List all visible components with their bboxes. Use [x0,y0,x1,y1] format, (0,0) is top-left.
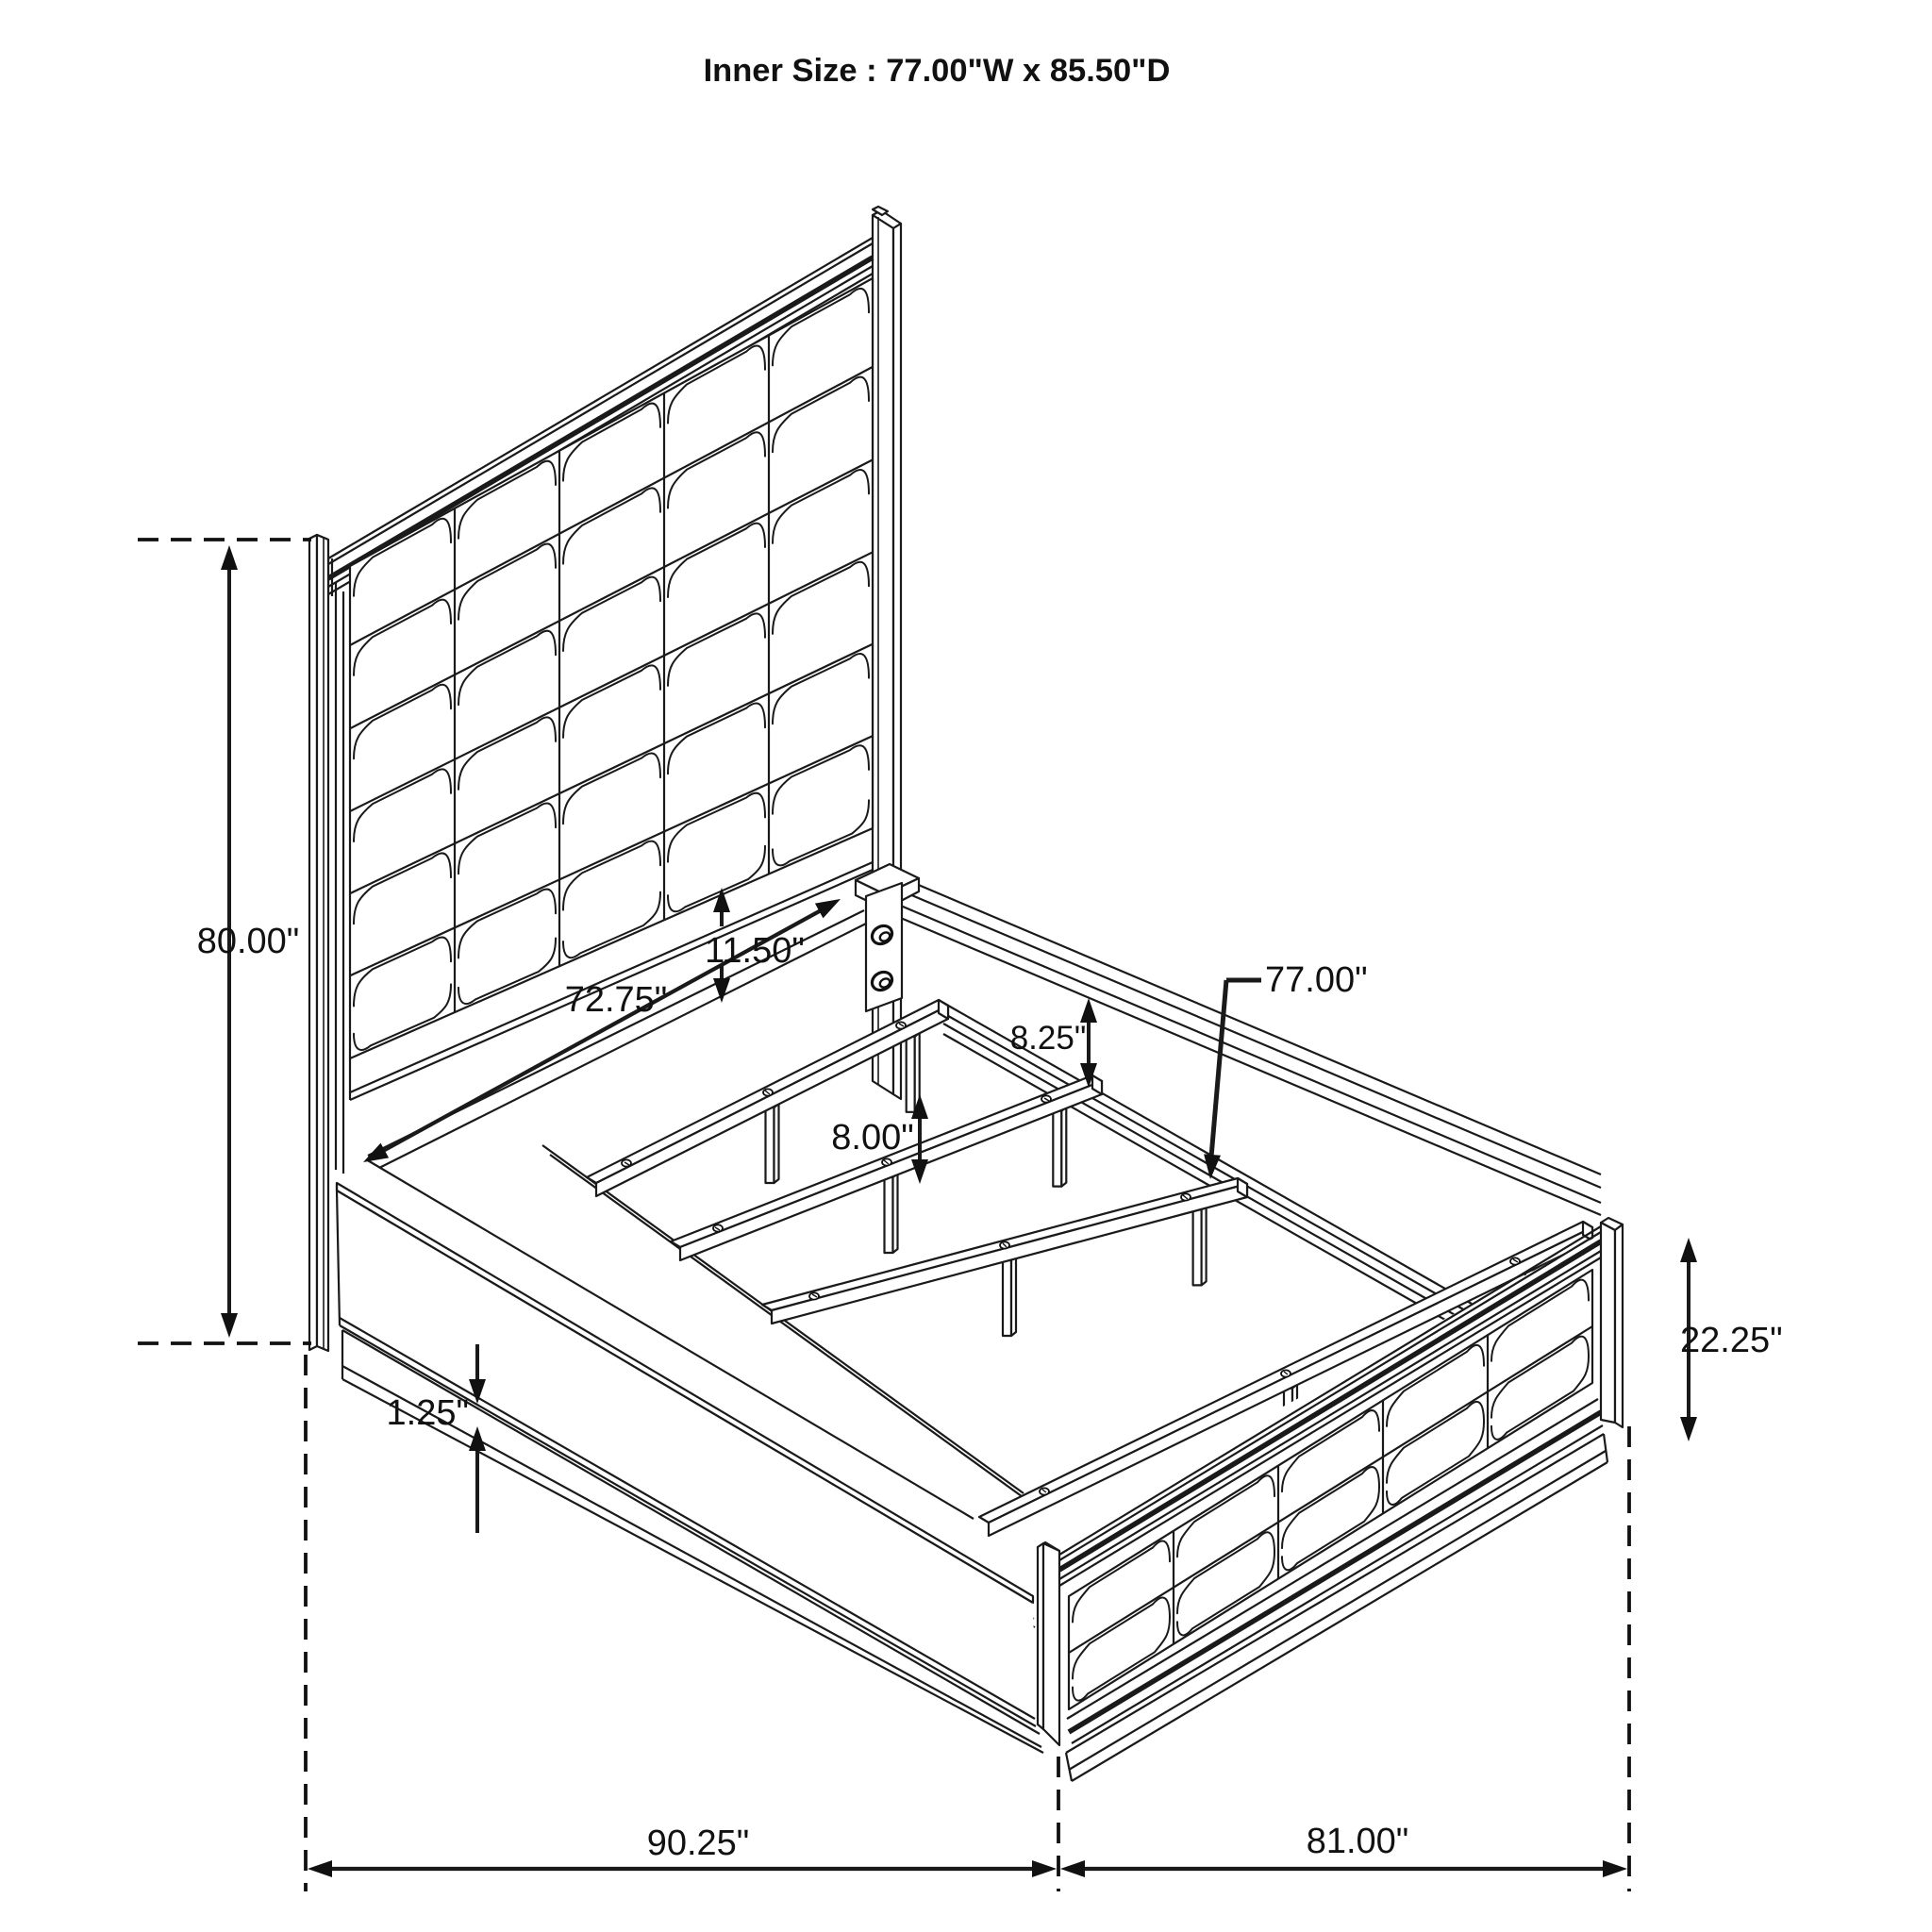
svg-text:77.00": 77.00" [1265,960,1368,1000]
svg-text:1.25": 1.25" [387,1393,469,1433]
svg-text:90.25": 90.25" [647,1824,750,1863]
svg-text:22.25": 22.25" [1680,1321,1783,1360]
svg-text:8.00": 8.00" [831,1118,913,1158]
svg-text:8.25": 8.25" [1010,1020,1087,1057]
svg-text:Inner Size : 77.00"W x 85.50"D: Inner Size : 77.00"W x 85.50"D [704,53,1171,89]
svg-text:11.50": 11.50" [705,931,805,971]
svg-text:81.00": 81.00" [1307,1822,1409,1861]
svg-text:80.00": 80.00" [197,922,300,961]
svg-text:72.75": 72.75" [565,980,668,1020]
